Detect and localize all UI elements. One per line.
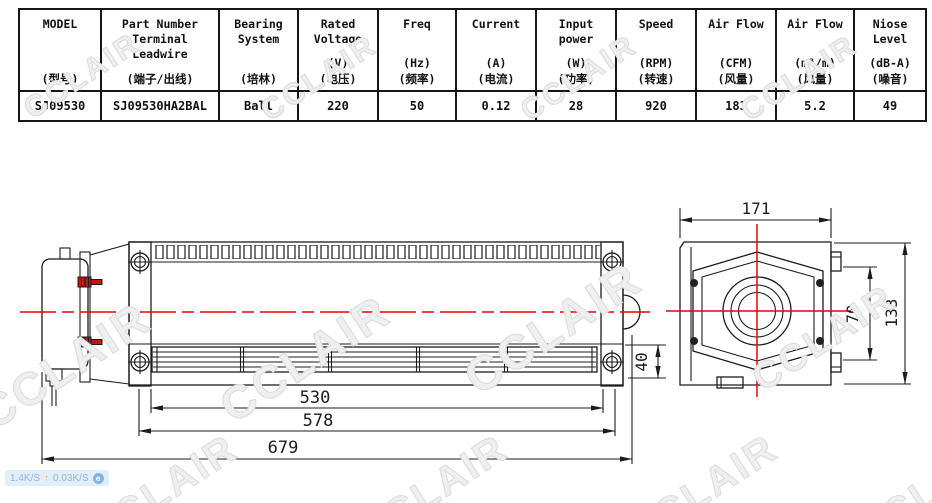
spec-table: MODEL (型号) Part Number Terminal Leadwire… [18,8,927,122]
lead-wire [46,369,62,406]
dim-40: 40 [632,352,651,371]
header-en: Air Flow [778,17,852,32]
header-en: Rated Voltage [300,17,376,47]
header-en: Part Number Terminal Leadwire [103,17,217,62]
dim-679: 679 [268,438,299,458]
cell-airflow-m3: 5.2 [776,91,854,121]
screw-icon [816,279,824,287]
terminal-pin-top [78,277,102,287]
header-cn: (风量) [778,72,852,86]
dim-70: 70 [843,304,862,323]
vent-slots [154,245,601,259]
upload-speed: 0.03K/S [53,473,89,484]
cell-model: SJ09530 [19,91,101,121]
cell-airflow-cfm: 183 [696,91,776,121]
side-housing [680,242,841,388]
header-cn: (功率) [538,72,614,86]
cell-bearing: Ball [219,91,298,121]
screw-icon [690,279,698,287]
header-en: Air Flow [698,17,774,32]
header-noise: Niose Level (dB-A) (噪音) [854,9,926,91]
cell-current: 0.12 [456,91,536,121]
fan-body [129,242,640,385]
left-bracket [128,242,152,386]
screw-icon [690,337,698,345]
header-cn: (电压) [300,72,376,86]
header-en: MODEL [21,17,99,32]
header-cn: (培林) [221,72,296,86]
header-model: MODEL (型号) [19,9,101,91]
right-bracket [600,242,624,386]
dim-578: 578 [303,411,334,431]
dim-133: 133 [882,299,901,328]
header-cn: (端子/出线) [103,72,217,86]
data-row: SJ09530 SJ09530HA2BAL Ball 220 50 0.12 2… [19,91,926,121]
header-en: Freq [380,17,454,32]
motor-housing [42,244,129,384]
header-cn: (型号) [21,72,99,86]
header-bearing: Bearing System (培林) [219,9,298,91]
cell-freq: 50 [378,91,456,121]
mount-tab-bottom [831,353,841,372]
net-speed-overlay[interactable]: 1.4K/S ↑ 0.03K/S e [5,470,109,486]
header-current: Current (A) (电流) [456,9,536,91]
header-en: Current [458,17,534,32]
header-airflow-m3: Air Flow (m³/m) (风量) [776,9,854,91]
header-cn: (频率) [380,72,454,86]
datasheet-page: 530 578 679 40 [0,0,932,503]
cell-input-power: 28 [536,91,616,121]
side-crosshair [666,224,851,397]
side-view: 171 70 133 [666,199,911,397]
cell-speed: 920 [616,91,696,121]
upload-arrow-icon: ↑ [44,473,49,484]
cell-part-number: SJ09530HA2BAL [101,91,219,121]
dim-530: 530 [300,388,331,408]
header-cn: (风量) [698,72,774,86]
header-part-number: Part Number Terminal Leadwire (端子/出线) [101,9,219,91]
header-speed: Speed (RPM) (转速) [616,9,696,91]
header-en: Speed [618,17,694,32]
header-voltage: Rated Voltage (V) (电压) [298,9,378,91]
net-monitor-app-icon[interactable]: e [93,473,104,484]
screw-icon [816,337,824,345]
cell-noise: 49 [854,91,926,121]
front-view: 530 578 679 40 [20,242,666,464]
header-cn: (噪音) [856,72,924,86]
header-cn: (电流) [458,72,534,86]
dim-171: 171 [742,199,771,218]
side-dimensions: 171 70 133 [680,199,911,384]
header-en: Niose Level [856,17,924,47]
header-en: Bearing System [221,17,296,47]
header-row: MODEL (型号) Part Number Terminal Leadwire… [19,9,926,91]
mount-tab-top [831,252,841,271]
header-input-power: Input power (W) (功率) [536,9,616,91]
terminal-pin-bottom [78,337,102,347]
header-freq: Freq (Hz) (频率) [378,9,456,91]
header-cn: (转速) [618,72,694,86]
download-speed: 1.4K/S [10,473,40,484]
header-en: Input power [538,17,614,47]
outlet-grille [152,347,597,372]
cell-voltage: 220 [298,91,378,121]
header-airflow-cfm: Air Flow (CFM) (风量) [696,9,776,91]
